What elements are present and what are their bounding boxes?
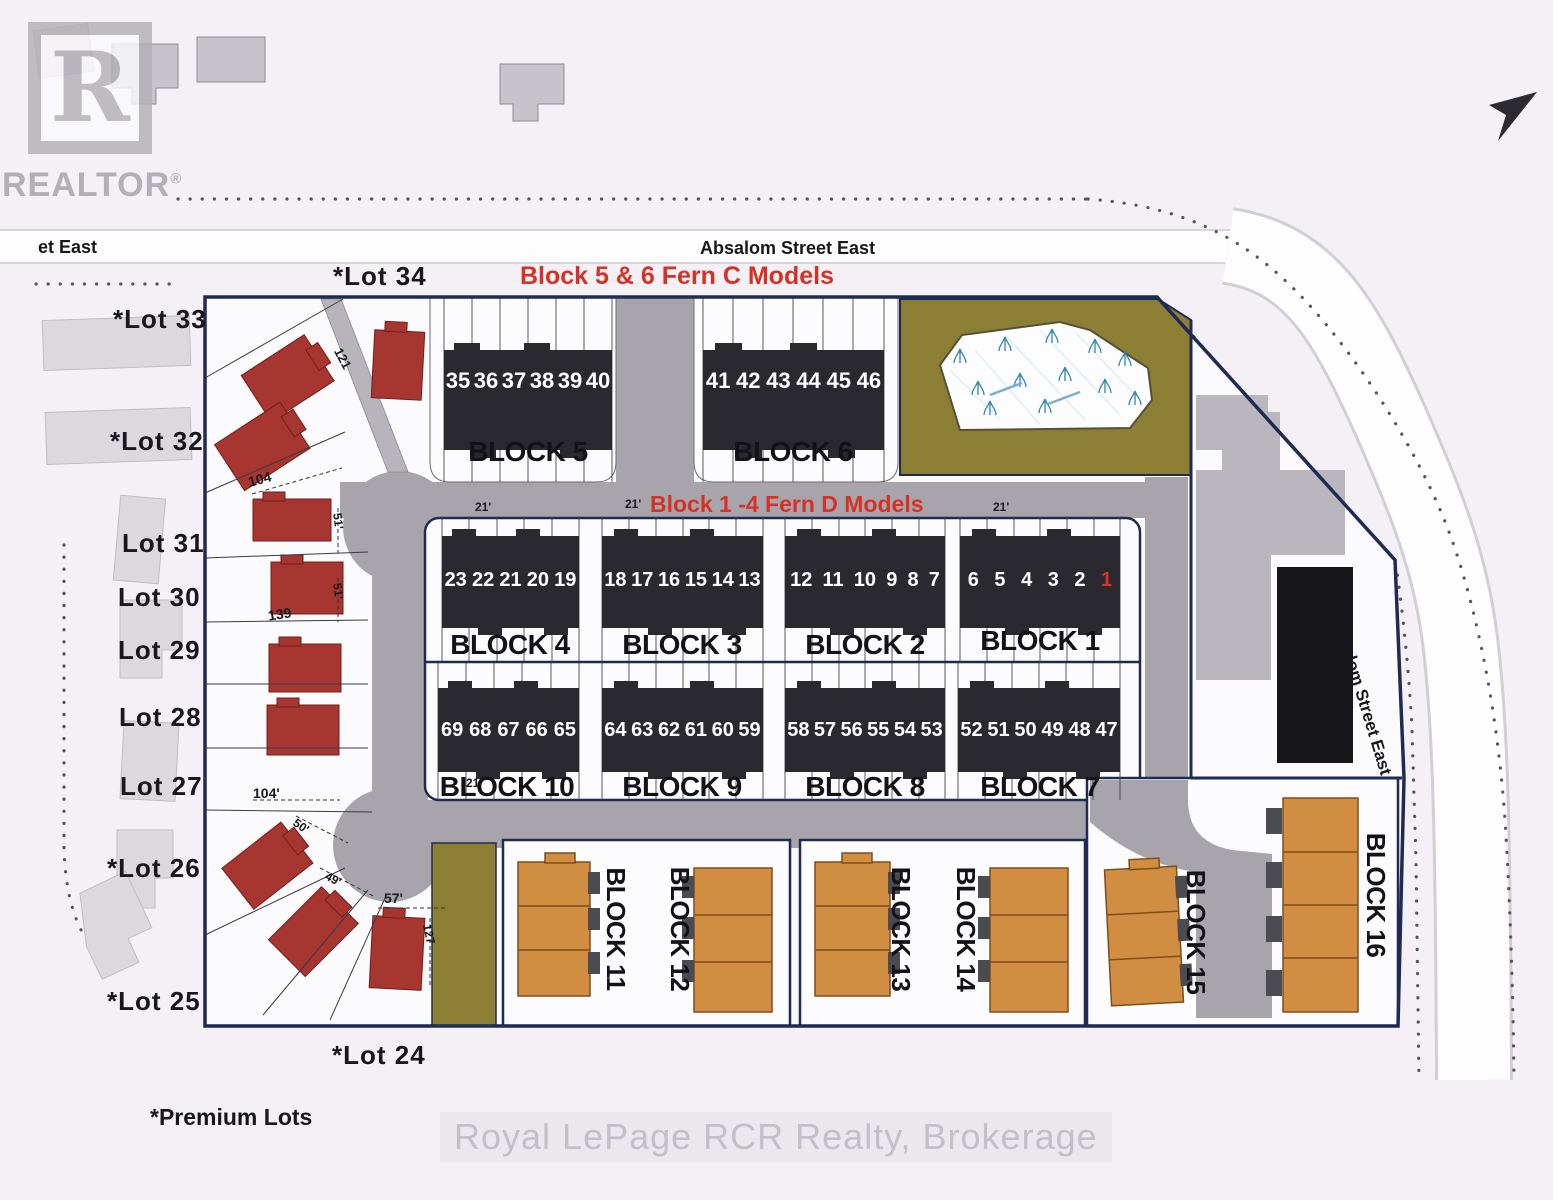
unit-number: 15 <box>685 570 707 590</box>
block15-label: BLOCK 15 <box>1183 847 1209 1017</box>
unit-number: 11 <box>822 570 843 590</box>
block4-label: BLOCK 4 <box>410 631 610 659</box>
realtor-logo-inner: R <box>41 35 139 141</box>
block3-label: BLOCK 3 <box>582 631 782 659</box>
red-house <box>267 698 339 755</box>
block6-label: BLOCK 6 <box>693 438 893 466</box>
red-house <box>253 492 331 541</box>
block10-label: BLOCK 10 <box>407 773 607 801</box>
unit-number: 61 <box>685 720 707 740</box>
premium-lots-note: *Premium Lots <box>150 1106 312 1129</box>
unit-number: 63 <box>631 720 653 740</box>
block8-label: BLOCK 8 <box>765 773 965 801</box>
unit-number: 6 <box>968 570 979 590</box>
lot-label-29: Lot 29 <box>118 637 201 663</box>
dimension-label: 21' <box>993 501 1009 513</box>
realtor-wordmark-text: REALTOR <box>2 166 170 204</box>
building-block11 <box>518 853 600 996</box>
block9-unit-numbers: 646362616059 <box>602 718 763 742</box>
unit-number: 13 <box>738 570 760 590</box>
unit-number: 18 <box>604 570 626 590</box>
building-block12 <box>682 868 772 1012</box>
unit-number: 51 <box>987 720 1009 740</box>
building-block14 <box>978 868 1068 1012</box>
realtor-logo: R <box>28 22 152 154</box>
unit-number: 21 <box>499 570 521 590</box>
unit-number: 60 <box>712 720 734 740</box>
lot-label-26: *Lot 26 <box>107 855 201 881</box>
dimension-label: 127 <box>421 923 437 945</box>
road-knuckle-lower <box>333 788 447 902</box>
realtor-wordmark: REALTOR® <box>2 166 182 205</box>
lot-label-27: Lot 27 <box>120 773 203 799</box>
block11-label: BLOCK 11 <box>603 844 629 1014</box>
lot-label-24: *Lot 24 <box>332 1042 426 1068</box>
dimension-label: 21' <box>625 498 641 510</box>
block14-label: BLOCK 14 <box>953 844 979 1014</box>
annotation-fern-d: Block 1 -4 Fern D Models <box>650 493 924 516</box>
unit-number: 16 <box>658 570 680 590</box>
unit-number: 35 <box>446 370 470 392</box>
block7-unit-numbers: 525150494847 <box>958 718 1120 742</box>
lot-label-32: *Lot 32 <box>110 428 204 454</box>
block12-label: BLOCK 12 <box>667 844 693 1014</box>
unit-number: 4 <box>1021 570 1032 590</box>
lot-label-31: Lot 31 <box>122 530 205 556</box>
unit-number: 54 <box>894 720 916 740</box>
unit-number: 19 <box>554 570 576 590</box>
unit-number: 55 <box>867 720 889 740</box>
street-label-left-partial: et East <box>38 238 97 256</box>
unit-number: 9 <box>886 570 897 590</box>
unit-number: 43 <box>766 370 790 392</box>
unit-number: 47 <box>1095 720 1117 740</box>
block2-label: BLOCK 2 <box>765 631 965 659</box>
unit-number: 5 <box>994 570 1005 590</box>
dimension-label: 139 <box>267 605 292 622</box>
dimension-label: 21' <box>475 501 491 513</box>
block13-label: BLOCK 13 <box>888 844 914 1014</box>
unit-number: 2 <box>1074 570 1085 590</box>
unit-number: 52 <box>960 720 982 740</box>
block16-label: BLOCK 16 <box>1363 810 1389 980</box>
brokerage-watermark: Royal LePage RCR Realty, Brokerage <box>440 1112 1112 1162</box>
unit-number: 53 <box>920 720 942 740</box>
realtor-logo-letter: R <box>50 40 130 136</box>
block1-unit-numbers: 654321 <box>960 568 1120 592</box>
unit-number: 36 <box>474 370 498 392</box>
block10-unit-numbers: 6968676665 <box>438 718 579 742</box>
unit-number: 44 <box>796 370 820 392</box>
unit-number: 59 <box>738 720 760 740</box>
unit-number: 14 <box>712 570 734 590</box>
dimension-label: 21' <box>466 777 482 789</box>
unit-number: 17 <box>631 570 653 590</box>
unit-number: 56 <box>841 720 863 740</box>
unit-number: 22 <box>472 570 494 590</box>
registered-symbol: ® <box>170 171 182 188</box>
block3-unit-numbers: 181716151413 <box>602 568 763 592</box>
unit-number: 10 <box>854 570 876 590</box>
unit-number: 49 <box>1041 720 1063 740</box>
unit-number: 45 <box>826 370 850 392</box>
red-house <box>369 907 425 991</box>
unit-number: 38 <box>530 370 554 392</box>
unit-number: 67 <box>497 720 519 740</box>
dimension-label: 57' <box>384 891 403 905</box>
block5-unit-numbers: 353637383940 <box>444 369 612 393</box>
lot-label-28: Lot 28 <box>119 704 202 730</box>
unit-number: 64 <box>604 720 626 740</box>
unit-number: 20 <box>527 570 549 590</box>
unit-number: 65 <box>554 720 576 740</box>
block4-unit-numbers: 2322212019 <box>442 568 579 592</box>
dimension-label: 51' <box>331 512 345 530</box>
annotation-fern-c: Block 5 & 6 Fern C Models <box>520 264 834 289</box>
unit-number: 23 <box>445 570 467 590</box>
unit-number: 8 <box>907 570 918 590</box>
block8-unit-numbers: 585756555453 <box>785 718 945 742</box>
unit-number: 42 <box>736 370 760 392</box>
unit-number: 62 <box>658 720 680 740</box>
unit-number: 50 <box>1014 720 1036 740</box>
unit-number: 66 <box>526 720 548 740</box>
existing-black-building <box>1277 567 1353 763</box>
block5-label: BLOCK 5 <box>428 438 628 466</box>
dimension-label: 51' <box>331 582 345 600</box>
lot-label-30: Lot 30 <box>118 584 201 610</box>
site-plan-canvas <box>0 0 1553 1200</box>
street-label-top: Absalom Street East <box>700 239 875 257</box>
block6-unit-numbers: 414243444546 <box>703 369 884 393</box>
unit-number: 69 <box>441 720 463 740</box>
red-house <box>371 321 425 401</box>
unit-number: 58 <box>787 720 809 740</box>
lot-label-25: *Lot 25 <box>107 988 201 1014</box>
block2-unit-numbers: 121110987 <box>785 568 945 592</box>
block7-label: BLOCK 7 <box>940 773 1140 801</box>
lot-label-33: *Lot 33 <box>113 306 207 332</box>
block1-label: BLOCK 1 <box>940 627 1140 655</box>
unit-number: 7 <box>929 570 940 590</box>
unit-number: 48 <box>1068 720 1090 740</box>
unit-number: 68 <box>469 720 491 740</box>
block9-label: BLOCK 9 <box>582 773 782 801</box>
unit-number: 39 <box>558 370 582 392</box>
unit-number-highlighted: 1 <box>1101 570 1112 590</box>
unit-number: 40 <box>586 370 610 392</box>
unit-number: 3 <box>1048 570 1059 590</box>
dimension-label: 104' <box>253 786 280 800</box>
lot-label-34: *Lot 34 <box>333 263 427 289</box>
unit-number: 57 <box>814 720 836 740</box>
top-street-band <box>0 230 1245 263</box>
unit-number: 12 <box>790 570 812 590</box>
unit-number: 37 <box>502 370 526 392</box>
unit-number: 46 <box>857 370 881 392</box>
unit-number: 41 <box>706 370 730 392</box>
olive-area-southwest <box>432 843 496 1026</box>
site-plan-screenshot: R REALTOR® et East Absalom Street East A… <box>0 0 1553 1200</box>
